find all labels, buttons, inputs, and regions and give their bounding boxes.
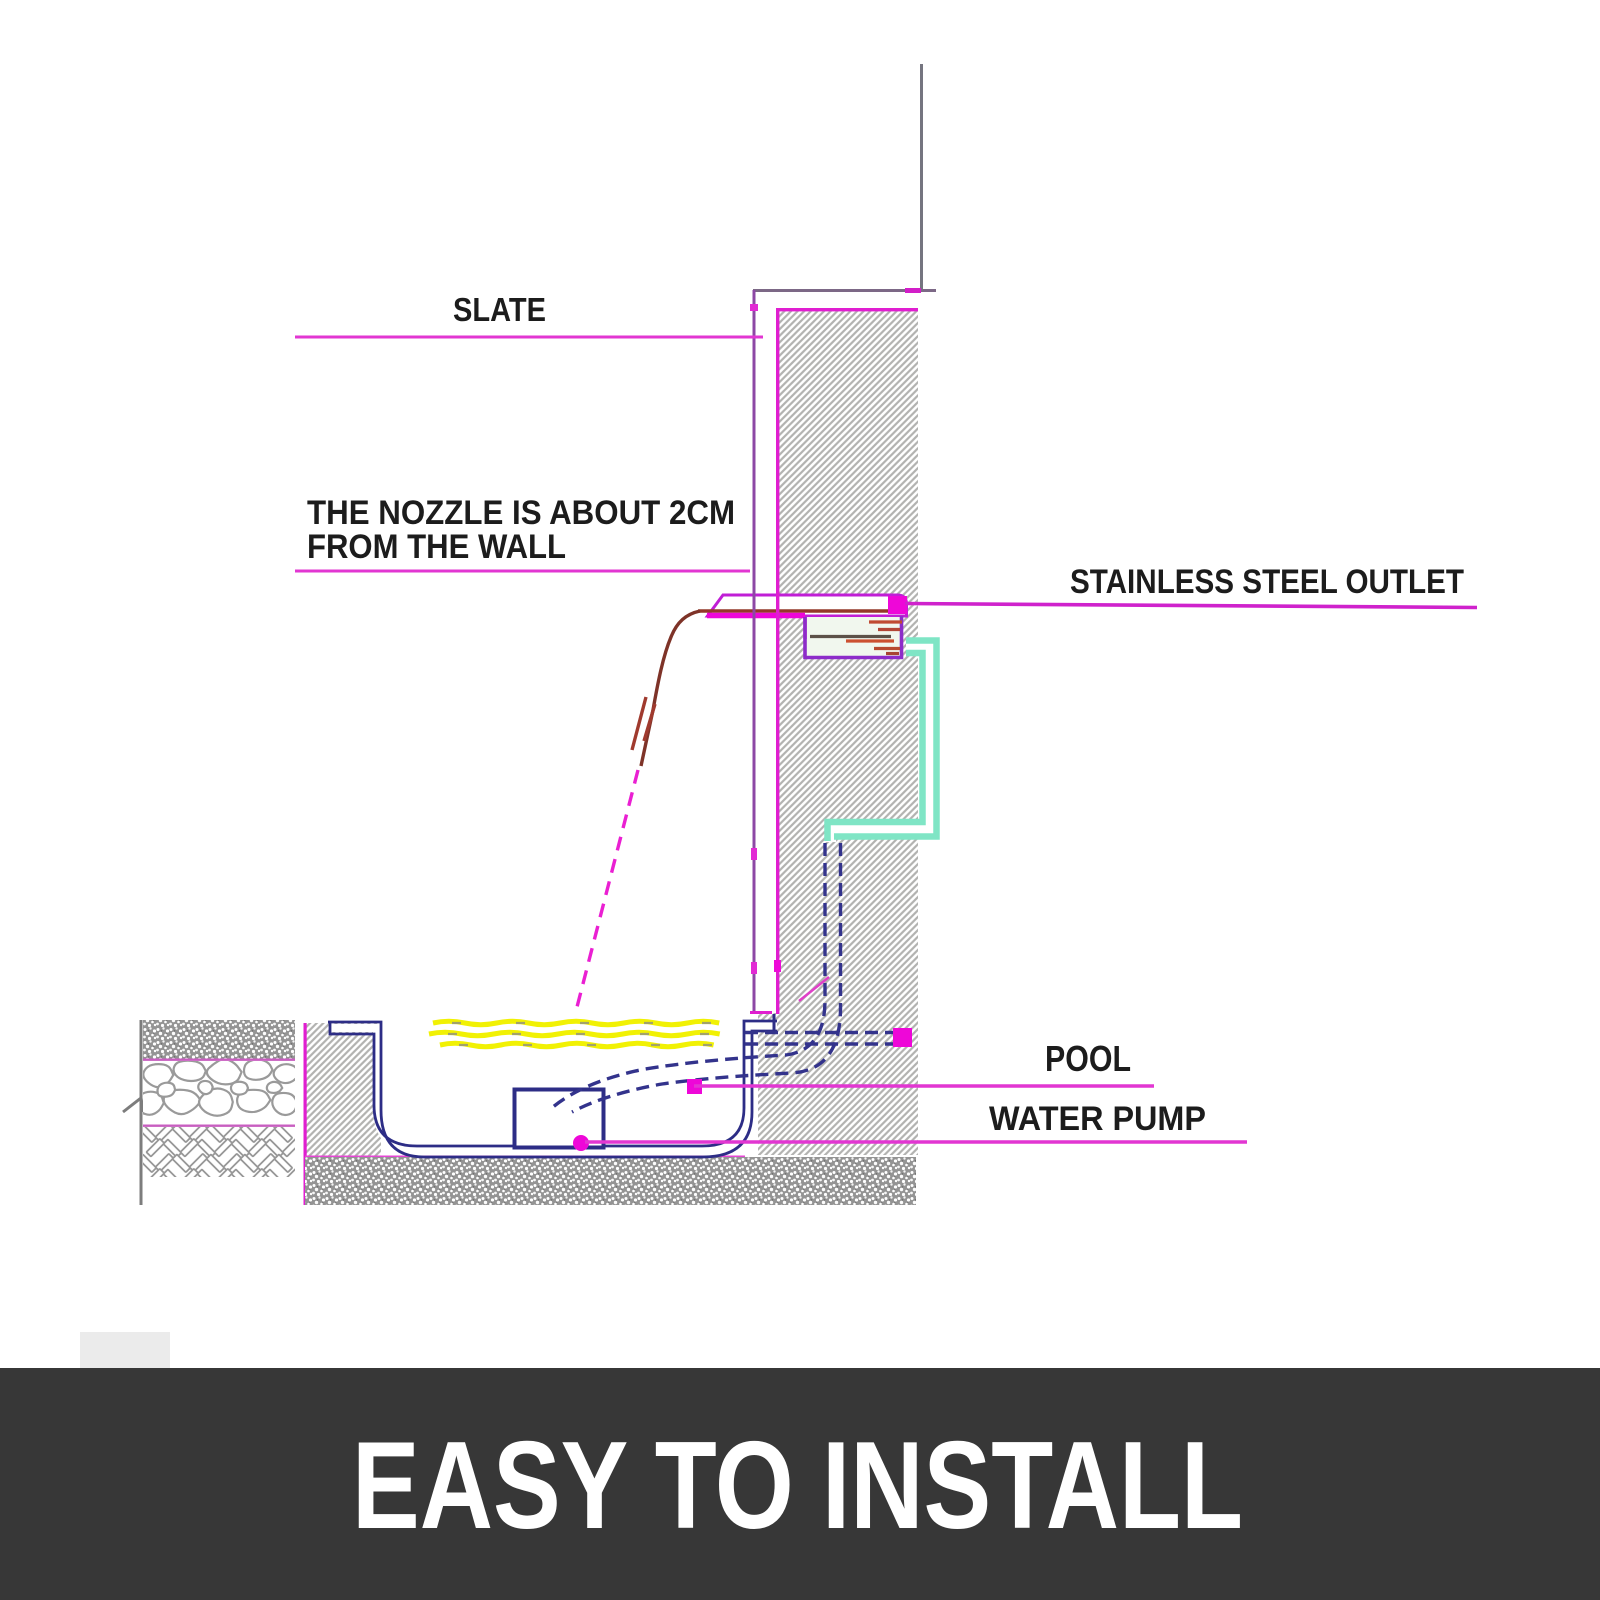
svg-text:POOL: POOL xyxy=(1045,1038,1131,1079)
svg-text:FROM THE WALL: FROM THE WALL xyxy=(307,528,566,566)
svg-text:THE NOZZLE IS ABOUT 2CM: THE NOZZLE IS ABOUT 2CM xyxy=(307,494,735,532)
svg-text:WATER PUMP: WATER PUMP xyxy=(989,1100,1206,1138)
svg-text:SLATE: SLATE xyxy=(453,291,546,328)
svg-text:STAINLESS STEEL OUTLET: STAINLESS STEEL OUTLET xyxy=(1070,563,1464,601)
svg-text:EASY TO INSTALL: EASY TO INSTALL xyxy=(352,1417,1243,1555)
